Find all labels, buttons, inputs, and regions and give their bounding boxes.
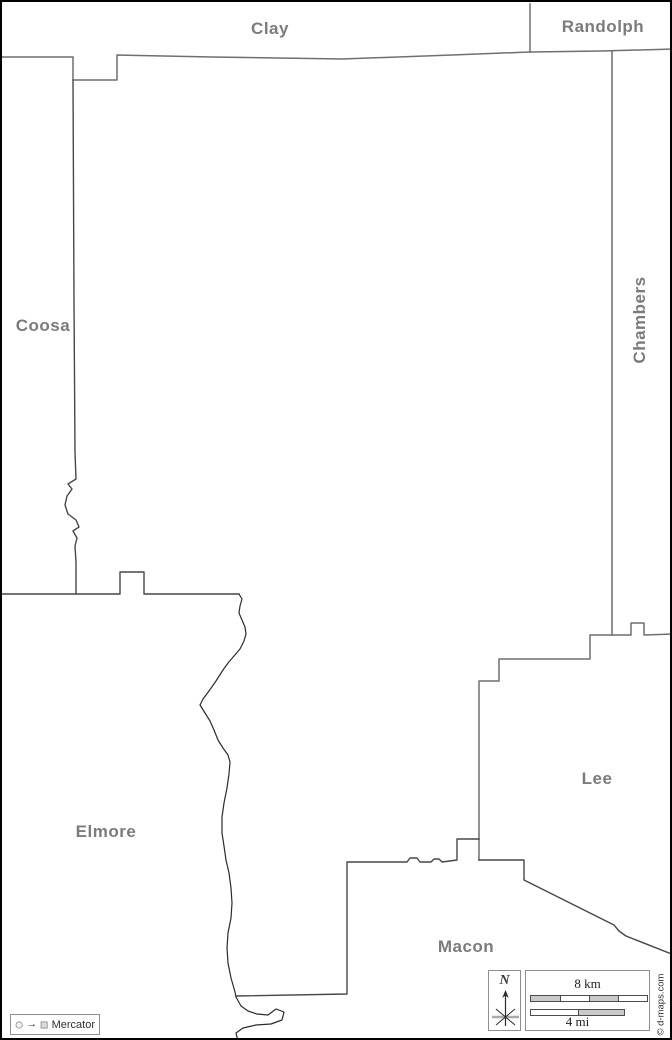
- boundary-lee-west-steps: [479, 635, 612, 860]
- credit-watermark: © d-maps.com: [656, 958, 669, 1036]
- arrow-right-icon: →: [26, 1019, 37, 1030]
- scale-segment: [589, 996, 618, 1001]
- county-label-elmore: Elmore: [76, 822, 137, 842]
- boundary-macon-lee-diagonal: [479, 860, 670, 955]
- map-frame: Clay Randolph Coosa Chambers Elmore Lee …: [0, 0, 672, 1040]
- projection-legend: → Mercator: [10, 1014, 100, 1035]
- compass-rose: N: [488, 970, 521, 1031]
- scale-segment: [531, 996, 560, 1001]
- county-label-clay: Clay: [251, 19, 289, 39]
- scale-km-label: 8 km: [526, 976, 649, 992]
- river-boundary-elmore: [200, 594, 246, 997]
- county-label-randolph: Randolph: [562, 17, 644, 37]
- boundary-clay-north: [2, 49, 670, 80]
- county-label-chambers: Chambers: [630, 276, 650, 363]
- county-label-lee: Lee: [582, 769, 613, 789]
- boundary-chambers-lee: [612, 623, 670, 635]
- scale-bar: 8 km 4 mi: [525, 970, 650, 1031]
- projection-name: Mercator: [52, 1019, 95, 1031]
- county-label-coosa: Coosa: [16, 316, 70, 336]
- scale-mi-label: 4 mi: [530, 1014, 625, 1030]
- projected-square-icon: [40, 1019, 48, 1031]
- county-outline-map: [2, 2, 670, 1038]
- scale-bar-km: [530, 995, 648, 1002]
- boundary-coosa-west: [65, 80, 79, 594]
- scale-segment: [618, 996, 647, 1001]
- globe-circle-icon: [15, 1019, 23, 1031]
- scale-segment: [560, 996, 589, 1001]
- boundary-coosa-elmore-south: [2, 572, 239, 594]
- river-boundary-elmore-macon: [236, 997, 284, 1038]
- compass-north-label: N: [489, 974, 520, 988]
- county-label-macon: Macon: [438, 937, 494, 957]
- north-arrow-icon: [489, 988, 522, 1030]
- boundary-macon-north: [236, 839, 479, 996]
